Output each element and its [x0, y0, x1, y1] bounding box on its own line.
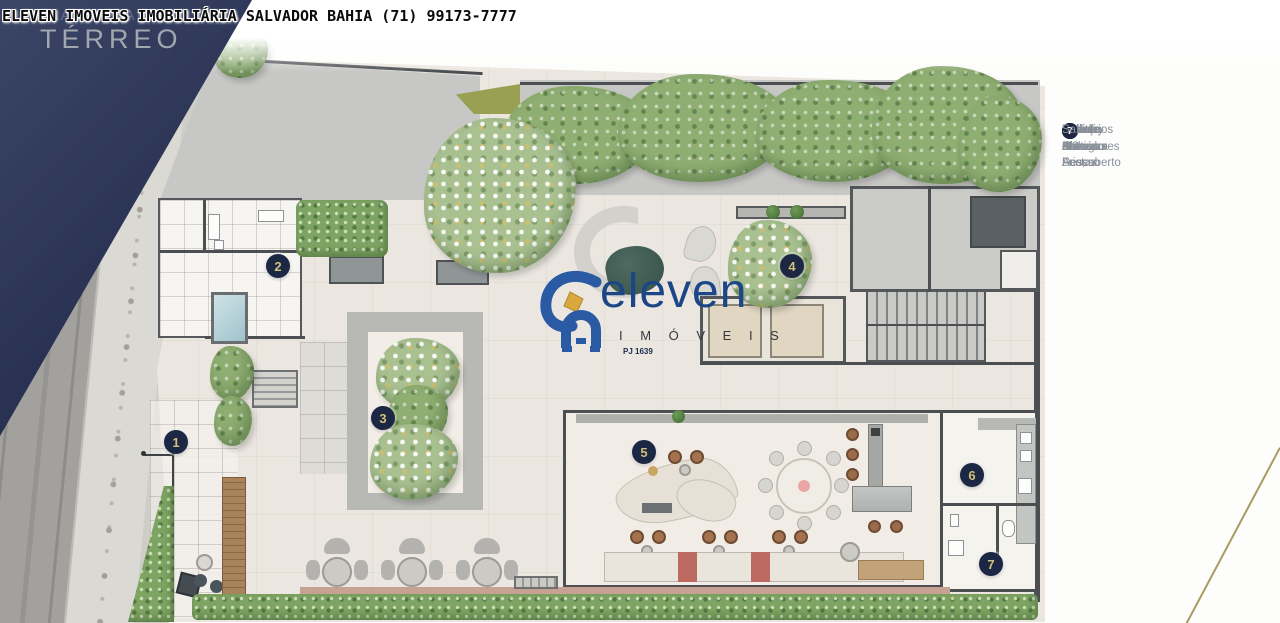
chair	[194, 574, 207, 587]
stair-landing-divider	[866, 324, 986, 326]
fridge	[1018, 478, 1032, 494]
cafe-chair	[652, 530, 666, 544]
bath-fixture	[208, 214, 220, 240]
plan-marker-7: 7	[979, 552, 1003, 576]
sink-fixture	[258, 210, 284, 222]
plan-marker-3: 3	[371, 406, 395, 430]
patio-chair	[429, 560, 443, 580]
wood-table	[858, 560, 924, 580]
stone-table	[840, 542, 860, 562]
potted-plant	[790, 205, 804, 219]
bench	[514, 576, 558, 589]
cafe-chair	[702, 530, 716, 544]
plan-marker-1: 1	[164, 430, 188, 454]
logo-registry-text: PJ 1639	[623, 347, 653, 356]
cafe-chair	[668, 450, 682, 464]
banquette-cushion	[751, 552, 770, 582]
logo-brand-text: eleven	[600, 264, 747, 319]
entry-steps	[252, 370, 298, 408]
bar-sink	[871, 428, 880, 436]
hedge-patch	[296, 200, 388, 257]
shower	[948, 540, 964, 556]
bottom-hedge	[192, 594, 1038, 620]
cafe-chair	[690, 450, 704, 464]
patio-chair	[381, 560, 395, 580]
service-divider	[928, 186, 931, 292]
service-room	[1000, 250, 1038, 290]
bar-stool	[846, 448, 859, 461]
room-divider-wall	[203, 200, 206, 252]
staircase	[866, 290, 986, 362]
water-mirror-pool	[211, 292, 248, 344]
wood-deck	[222, 477, 246, 609]
cafe-chair	[630, 530, 644, 544]
dark-service-room	[970, 196, 1026, 248]
dining-chair	[826, 505, 841, 520]
cafe-table	[679, 464, 691, 476]
patio-table	[322, 557, 352, 587]
bar-stool	[846, 428, 859, 441]
centerpiece	[798, 480, 810, 492]
cafe-chair	[724, 530, 738, 544]
patio-chair	[306, 560, 320, 580]
bar-stool	[868, 520, 881, 533]
gate-post	[141, 451, 146, 456]
patio-chair	[474, 538, 500, 554]
patio-chair	[399, 538, 425, 554]
decor-item	[648, 466, 658, 476]
plan-marker-4: 4	[780, 254, 804, 278]
plan-marker-2: 2	[266, 254, 290, 278]
dining-chair	[769, 505, 784, 520]
dining-chair	[826, 451, 841, 466]
bath-wall	[940, 503, 1038, 506]
fixture	[214, 240, 224, 250]
dining-chair	[797, 516, 812, 531]
floorplan-listing-image: 1 2 3 4 5 6 7 eleven I M Ó V E I S PJ 16…	[0, 0, 1280, 623]
plan-marker-5: 5	[632, 440, 656, 464]
potted-plant	[672, 410, 685, 423]
bar-stool	[890, 520, 903, 533]
dining-chair	[834, 478, 849, 493]
terracotta-strip	[300, 587, 950, 594]
elephant-logo-icon	[540, 268, 604, 352]
gold-diagonal-line	[1185, 447, 1280, 623]
dining-chair	[758, 478, 773, 493]
side-table	[196, 554, 213, 571]
agency-header-text: ELEVEN IMOVEIS IMOBILIÁRIA SALVADOR BAHI…	[2, 7, 517, 25]
counter-strip	[576, 414, 928, 423]
plan-marker-6: 6	[960, 463, 984, 487]
banner-terreo-label: TÉRREO	[40, 24, 183, 55]
potted-plant	[766, 205, 780, 219]
dining-chair	[769, 451, 784, 466]
logo-segment-text: I M Ó V E I S	[619, 328, 786, 343]
bath-wall	[996, 503, 999, 558]
legend-label: Sanitários	[1062, 122, 1113, 139]
sofa-base	[642, 503, 672, 513]
toilet	[1002, 520, 1015, 537]
patio-chair	[456, 560, 470, 580]
room-divider-wall	[160, 250, 300, 253]
gate-line	[144, 454, 174, 456]
cafe-chair	[794, 530, 808, 544]
patio-table	[472, 557, 502, 587]
dining-chair	[797, 441, 812, 456]
cafe-chair	[772, 530, 786, 544]
banquette-cushion	[678, 552, 697, 582]
patio-table	[397, 557, 427, 587]
planter-bench	[329, 256, 384, 284]
appliance	[1020, 450, 1032, 462]
patio-chair	[324, 538, 350, 554]
bar-stool	[846, 468, 859, 481]
appliance	[1020, 432, 1032, 444]
patio-chair	[354, 560, 368, 580]
bath-sink	[950, 514, 959, 527]
bar-island	[852, 486, 912, 512]
corridor-wall	[700, 362, 1040, 365]
